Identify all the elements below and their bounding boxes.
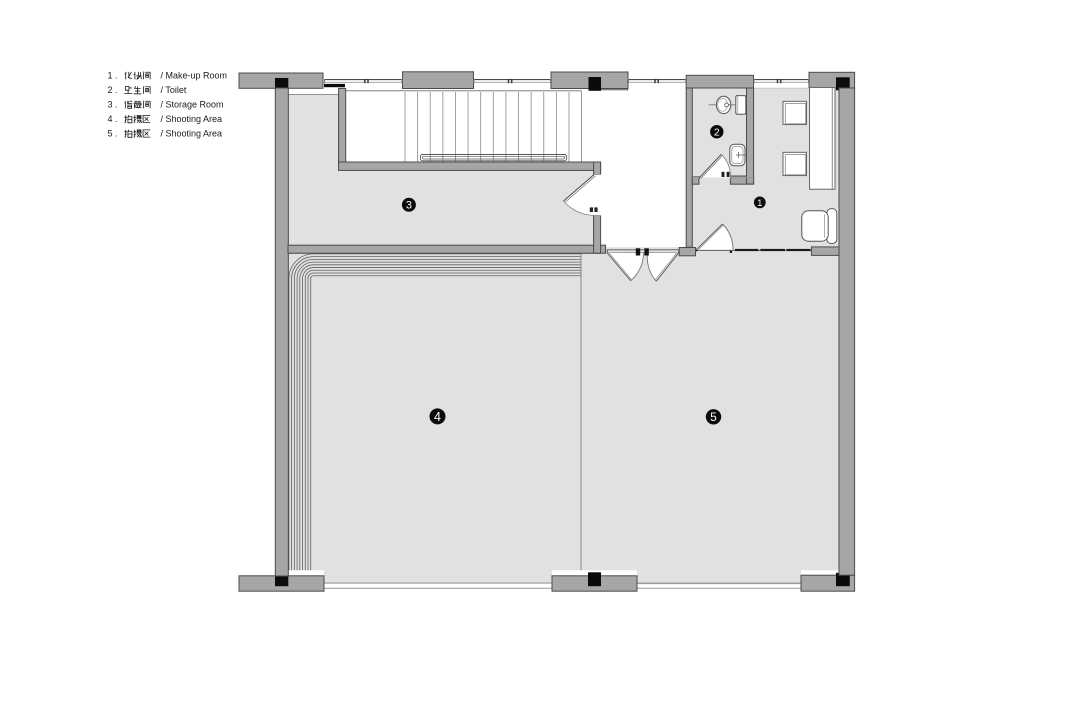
svg-text:/ Shooting Area: / Shooting Area: [161, 129, 223, 139]
svg-text:1: 1: [757, 198, 762, 209]
svg-text:4: 4: [434, 410, 441, 424]
svg-text:2: 2: [714, 126, 720, 138]
svg-text:5: 5: [710, 410, 717, 424]
svg-text:/ Storage Room: / Storage Room: [161, 100, 224, 110]
svg-text:/ Toilet: / Toilet: [161, 85, 187, 95]
svg-text:5 .: 5 .: [108, 129, 118, 139]
svg-text:3: 3: [406, 200, 412, 212]
svg-text:/ Shooting Area: / Shooting Area: [161, 114, 223, 124]
svg-text:3 .: 3 .: [108, 100, 118, 110]
svg-text:/ Make-up Room: / Make-up Room: [161, 71, 228, 81]
svg-text:1 .: 1 .: [108, 71, 118, 81]
svg-text:2 .: 2 .: [108, 85, 118, 95]
svg-text:4 .: 4 .: [108, 114, 118, 124]
